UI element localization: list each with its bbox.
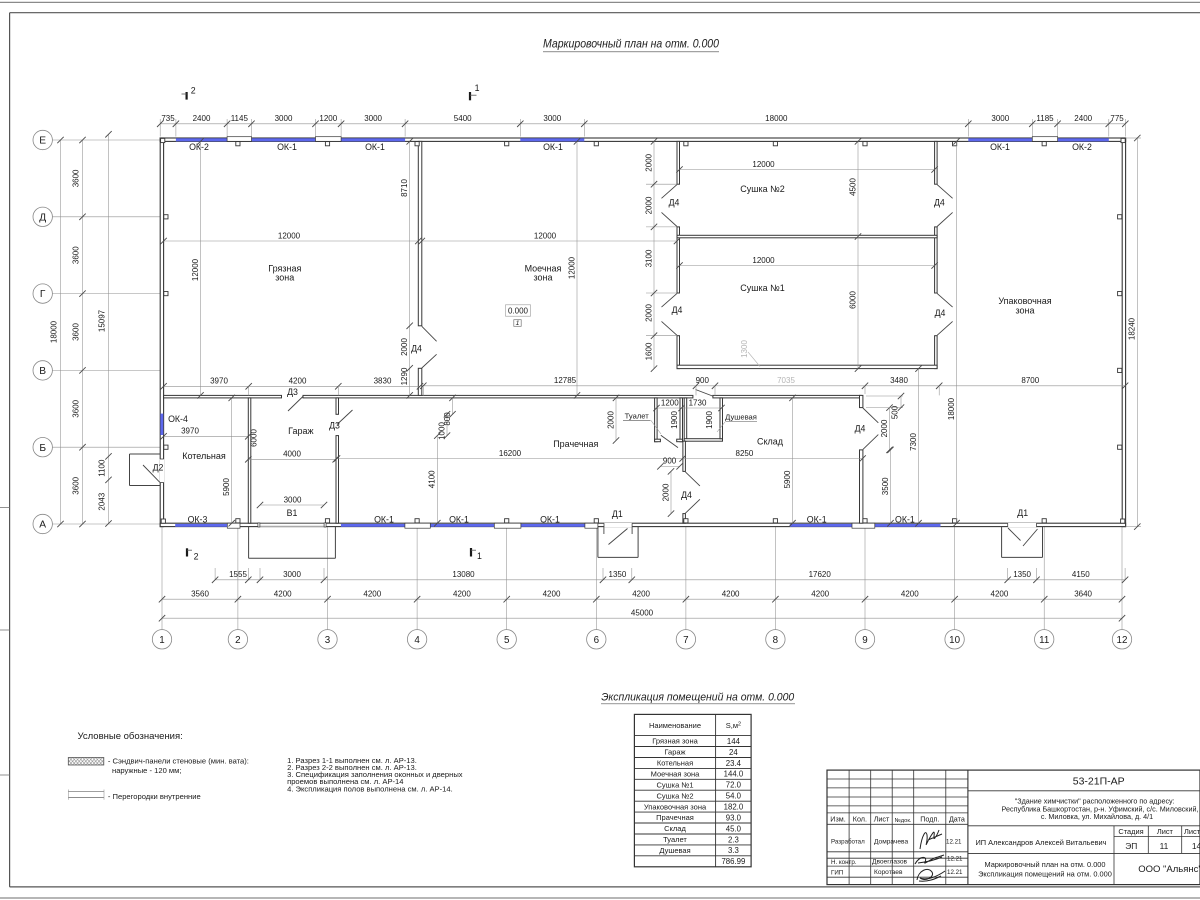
svg-text:7035: 7035	[777, 376, 795, 385]
svg-text:15097: 15097	[97, 309, 106, 332]
svg-text:12000: 12000	[752, 256, 775, 265]
svg-text:3000: 3000	[991, 114, 1009, 123]
svg-text:12785: 12785	[554, 376, 577, 385]
svg-text:144: 144	[727, 737, 741, 746]
svg-text:2000: 2000	[606, 411, 615, 429]
svg-text:144.0: 144.0	[724, 770, 744, 779]
svg-text:12000: 12000	[567, 256, 576, 279]
svg-text:3830: 3830	[374, 377, 392, 386]
svg-text:№док.: №док.	[895, 818, 912, 824]
svg-text:14: 14	[1192, 841, 1200, 851]
svg-text:ОК-1: ОК-1	[895, 514, 915, 524]
svg-text:735: 735	[161, 114, 175, 123]
svg-text:1: 1	[475, 83, 480, 93]
svg-text:3000: 3000	[284, 495, 302, 504]
svg-text:1: 1	[516, 320, 520, 327]
svg-text:ГИП: ГИП	[831, 869, 843, 876]
svg-text:Е: Е	[39, 136, 46, 147]
svg-text:10: 10	[949, 635, 960, 646]
svg-text:4100: 4100	[428, 470, 437, 488]
svg-text:45.0: 45.0	[726, 824, 742, 833]
svg-text:4200: 4200	[901, 590, 919, 599]
svg-text:Д1: Д1	[612, 509, 623, 519]
svg-text:Двоеглазов: Двоеглазов	[872, 859, 908, 866]
svg-text:4200: 4200	[632, 590, 650, 599]
svg-text:ОК-1: ОК-1	[374, 514, 394, 524]
svg-text:Упаковочная зона: Упаковочная зона	[644, 802, 707, 811]
svg-text:Моечная зона: Моечная зона	[651, 770, 700, 779]
svg-text:54.0: 54.0	[726, 792, 742, 801]
svg-text:4200: 4200	[453, 590, 471, 599]
svg-text:1145: 1145	[231, 114, 249, 123]
svg-text:1350: 1350	[1013, 570, 1031, 579]
svg-text:Маркировочный план на отм. 0.0: Маркировочный план на отм. 0.000	[984, 860, 1105, 869]
svg-text:Домрачева: Домрачева	[874, 838, 908, 845]
svg-text:ОК-4: ОК-4	[168, 414, 188, 424]
svg-text:Подп.: Подп.	[920, 815, 939, 824]
svg-text:А: А	[39, 520, 46, 531]
svg-text:93.0: 93.0	[726, 813, 742, 822]
svg-text:900: 900	[696, 376, 710, 385]
svg-text:7: 7	[683, 635, 688, 646]
svg-text:4. Экспликация полов выполнена: 4. Экспликация полов выполнена см. л. АР…	[287, 784, 453, 793]
svg-text:2.3: 2.3	[728, 835, 739, 844]
svg-text:5900: 5900	[783, 470, 792, 488]
svg-text:17620: 17620	[809, 570, 832, 579]
svg-text:3600: 3600	[71, 246, 80, 264]
svg-text:1185: 1185	[1036, 114, 1054, 123]
svg-text:3970: 3970	[181, 427, 199, 436]
svg-text:4200: 4200	[543, 590, 561, 599]
svg-text:775: 775	[1110, 114, 1124, 123]
svg-text:Лист: Лист	[1157, 827, 1174, 836]
svg-text:Д1: Д1	[1017, 508, 1028, 518]
svg-text:1600: 1600	[644, 342, 653, 360]
svg-text:ОК-1: ОК-1	[449, 514, 469, 524]
svg-text:3000: 3000	[364, 114, 382, 123]
svg-text:1290: 1290	[400, 367, 409, 385]
svg-text:12.21: 12.21	[946, 838, 962, 845]
svg-text:Туалет: Туалет	[625, 411, 650, 420]
svg-text:6000: 6000	[848, 291, 857, 309]
svg-text:18000: 18000	[947, 397, 956, 420]
svg-text:12000: 12000	[191, 258, 200, 281]
svg-text:Д4: Д4	[672, 305, 683, 315]
svg-text:2000: 2000	[644, 304, 653, 322]
svg-text:2: 2	[194, 552, 199, 562]
svg-text:24: 24	[729, 748, 738, 757]
svg-text:Д3: Д3	[287, 387, 298, 397]
svg-text:2000: 2000	[880, 419, 889, 437]
svg-text:Душевая: Душевая	[659, 846, 690, 855]
svg-text:Коротаев: Коротаев	[874, 869, 903, 876]
svg-text:зона: зона	[1015, 306, 1034, 316]
svg-text:2000: 2000	[400, 338, 409, 356]
svg-text:Д4: Д4	[935, 308, 946, 318]
svg-text:3000: 3000	[275, 114, 293, 123]
svg-text:Д: Д	[39, 212, 46, 223]
svg-text:3600: 3600	[71, 323, 80, 341]
svg-text:2: 2	[235, 635, 240, 646]
svg-text:1100: 1100	[97, 459, 106, 477]
svg-text:Б: Б	[39, 443, 46, 454]
svg-text:наружные - 120 мм;: наружные - 120 мм;	[112, 766, 181, 775]
svg-text:2000: 2000	[644, 196, 653, 214]
svg-text:Сушка №1: Сушка №1	[740, 283, 785, 293]
svg-text:1: 1	[477, 551, 482, 561]
svg-text:12000: 12000	[752, 160, 775, 169]
svg-text:3500: 3500	[881, 477, 890, 495]
svg-text:Грязная зона: Грязная зона	[652, 737, 698, 746]
svg-text:Д2: Д2	[153, 463, 164, 473]
svg-text:зона: зона	[533, 273, 552, 283]
svg-text:4200: 4200	[274, 590, 292, 599]
svg-text:Изм.: Изм.	[830, 815, 845, 824]
svg-text:8250: 8250	[736, 449, 754, 458]
svg-text:800: 800	[443, 412, 452, 426]
svg-text:3560: 3560	[191, 590, 209, 599]
svg-text:6: 6	[594, 635, 600, 646]
svg-text:ИП Александров Алексей Виталье: ИП Александров Алексей Витальевич	[975, 838, 1106, 847]
svg-text:ОК-1: ОК-1	[540, 514, 560, 524]
svg-text:1200: 1200	[661, 398, 679, 407]
svg-text:1730: 1730	[689, 398, 707, 407]
svg-text:1: 1	[159, 635, 164, 646]
svg-text:11: 11	[1160, 841, 1169, 851]
svg-text:11: 11	[1039, 635, 1049, 646]
svg-text:Склад: Склад	[664, 824, 686, 833]
svg-text:Экспликация помещений на отм.: Экспликация помещений на отм. 0.000	[601, 692, 795, 704]
svg-text:4200: 4200	[811, 590, 829, 599]
svg-text:4200: 4200	[289, 377, 307, 386]
svg-text:ОК-3: ОК-3	[188, 514, 208, 524]
svg-text:3000: 3000	[283, 570, 301, 579]
svg-text:3480: 3480	[890, 376, 908, 385]
svg-text:13080: 13080	[452, 570, 475, 579]
svg-text:16200: 16200	[499, 449, 522, 458]
svg-text:Прачечная: Прачечная	[553, 439, 598, 449]
svg-text:23.4: 23.4	[726, 759, 742, 768]
svg-text:Стадия: Стадия	[1118, 827, 1143, 836]
svg-text:Гараж: Гараж	[288, 426, 313, 436]
svg-text:6000: 6000	[249, 429, 258, 447]
svg-text:ОК-1: ОК-1	[365, 142, 385, 152]
svg-text:1555: 1555	[229, 570, 247, 579]
svg-text:9: 9	[862, 635, 867, 646]
svg-text:Упаковочная: Упаковочная	[998, 296, 1051, 306]
svg-text:2000: 2000	[644, 153, 653, 171]
svg-text:3970: 3970	[210, 377, 228, 386]
svg-text:Наименование: Наименование	[649, 721, 701, 730]
svg-text:18000: 18000	[49, 320, 58, 343]
svg-text:3600: 3600	[71, 169, 80, 187]
svg-text:2400: 2400	[1074, 114, 1092, 123]
svg-text:Н. контр.: Н. контр.	[831, 859, 857, 866]
svg-text:2000: 2000	[661, 483, 670, 501]
svg-text:Сушка №2: Сушка №2	[740, 184, 785, 194]
svg-text:2043: 2043	[97, 492, 106, 510]
svg-text:Листов: Листов	[1184, 827, 1200, 836]
svg-text:Д3: Д3	[329, 421, 340, 431]
svg-text:12.21: 12.21	[947, 856, 963, 863]
svg-text:Лист: Лист	[874, 815, 890, 824]
svg-text:Склад: Склад	[757, 436, 784, 446]
svg-text:Д4: Д4	[855, 424, 866, 434]
svg-text:5900: 5900	[222, 478, 231, 496]
svg-text:18240: 18240	[1128, 317, 1137, 340]
svg-text:Сушка №1: Сушка №1	[656, 780, 693, 789]
svg-text:Д4: Д4	[669, 197, 680, 207]
svg-text:4150: 4150	[1072, 570, 1090, 579]
svg-text:12.21: 12.21	[947, 869, 963, 876]
svg-text:8700: 8700	[1021, 376, 1039, 385]
svg-text:1900: 1900	[670, 411, 679, 429]
svg-text:с. Миловка, ул. Михайлова, д.: с. Миловка, ул. Михайлова, д. 4/1	[1041, 812, 1153, 821]
svg-text:Г: Г	[40, 289, 46, 300]
svg-text:5: 5	[504, 635, 510, 646]
svg-text:7300: 7300	[909, 433, 918, 451]
svg-text:3600: 3600	[71, 476, 80, 494]
svg-text:53-21П-АР: 53-21П-АР	[1073, 775, 1125, 787]
svg-text:Туалет: Туалет	[663, 835, 687, 844]
svg-text:- Сэндвич-панели стеновые (мин: - Сэндвич-панели стеновые (мин. вата):	[108, 757, 249, 766]
svg-text:4000: 4000	[283, 450, 301, 459]
svg-text:4200: 4200	[363, 590, 381, 599]
svg-text:В: В	[39, 366, 46, 377]
svg-text:12000: 12000	[278, 231, 301, 240]
svg-text:ЭП: ЭП	[1125, 841, 1137, 851]
svg-text:3600: 3600	[71, 399, 80, 417]
svg-text:1900: 1900	[705, 411, 714, 429]
svg-text:1350: 1350	[609, 570, 627, 579]
svg-text:Котельная: Котельная	[657, 759, 693, 768]
svg-text:786.99: 786.99	[721, 857, 745, 866]
svg-text:Условные обозначения:: Условные обозначения:	[78, 731, 183, 742]
svg-text:3100: 3100	[644, 249, 653, 267]
svg-text:900: 900	[663, 457, 677, 466]
svg-text:500: 500	[891, 405, 900, 419]
svg-text:Кол.: Кол.	[853, 815, 867, 824]
svg-text:8710: 8710	[400, 179, 409, 197]
svg-text:Экспликация помещений на отм.: Экспликация помещений на отм. 0.000	[978, 869, 1112, 878]
svg-text:ОК-1: ОК-1	[277, 142, 297, 152]
svg-text:45000: 45000	[631, 609, 654, 618]
svg-text:Маркировочный план на отм. 0.0: Маркировочный план на отм. 0.000	[543, 38, 719, 51]
svg-text:ОК-2: ОК-2	[1072, 142, 1092, 152]
svg-text:4200: 4200	[722, 590, 740, 599]
svg-text:- Перегородки внутренние: - Перегородки внутренние	[108, 792, 201, 801]
svg-text:Дата: Дата	[949, 815, 965, 824]
svg-text:зона: зона	[275, 273, 294, 283]
svg-text:4500: 4500	[848, 178, 857, 196]
svg-text:0.000: 0.000	[508, 306, 529, 315]
svg-text:3: 3	[325, 635, 331, 646]
svg-text:1300: 1300	[740, 340, 749, 358]
svg-text:4200: 4200	[991, 590, 1009, 599]
svg-text:5400: 5400	[454, 114, 472, 123]
svg-text:Сушка №2: Сушка №2	[656, 791, 693, 800]
svg-text:ОК-1: ОК-1	[990, 142, 1010, 152]
svg-text:Д4: Д4	[411, 344, 422, 354]
svg-text:2: 2	[191, 86, 196, 96]
svg-text:Разработал: Разработал	[831, 839, 865, 846]
svg-text:3640: 3640	[1074, 590, 1092, 599]
svg-text:ОК-1: ОК-1	[807, 514, 827, 524]
svg-text:Гараж: Гараж	[664, 748, 685, 757]
svg-text:Д4: Д4	[934, 198, 945, 208]
svg-text:72.0: 72.0	[726, 781, 742, 790]
svg-text:В1: В1	[287, 508, 298, 518]
svg-text:Котельная: Котельная	[182, 451, 226, 461]
svg-text:Д4: Д4	[681, 490, 692, 500]
svg-text:1200: 1200	[319, 114, 337, 123]
svg-text:3.3: 3.3	[728, 846, 739, 855]
svg-text:3000: 3000	[543, 114, 561, 123]
svg-text:8: 8	[773, 635, 779, 646]
svg-text:18000: 18000	[765, 114, 788, 123]
svg-text:ООО "Альянс": ООО "Альянс"	[1138, 864, 1200, 875]
svg-text:4: 4	[414, 635, 420, 646]
svg-text:12: 12	[1117, 635, 1128, 646]
svg-text:12000: 12000	[534, 231, 557, 240]
svg-text:Душевая: Душевая	[725, 413, 757, 422]
svg-text:2400: 2400	[193, 114, 211, 123]
svg-text:Прачечная: Прачечная	[656, 813, 694, 822]
svg-text:182.0: 182.0	[724, 803, 744, 812]
svg-text:ОК-1: ОК-1	[543, 142, 563, 152]
